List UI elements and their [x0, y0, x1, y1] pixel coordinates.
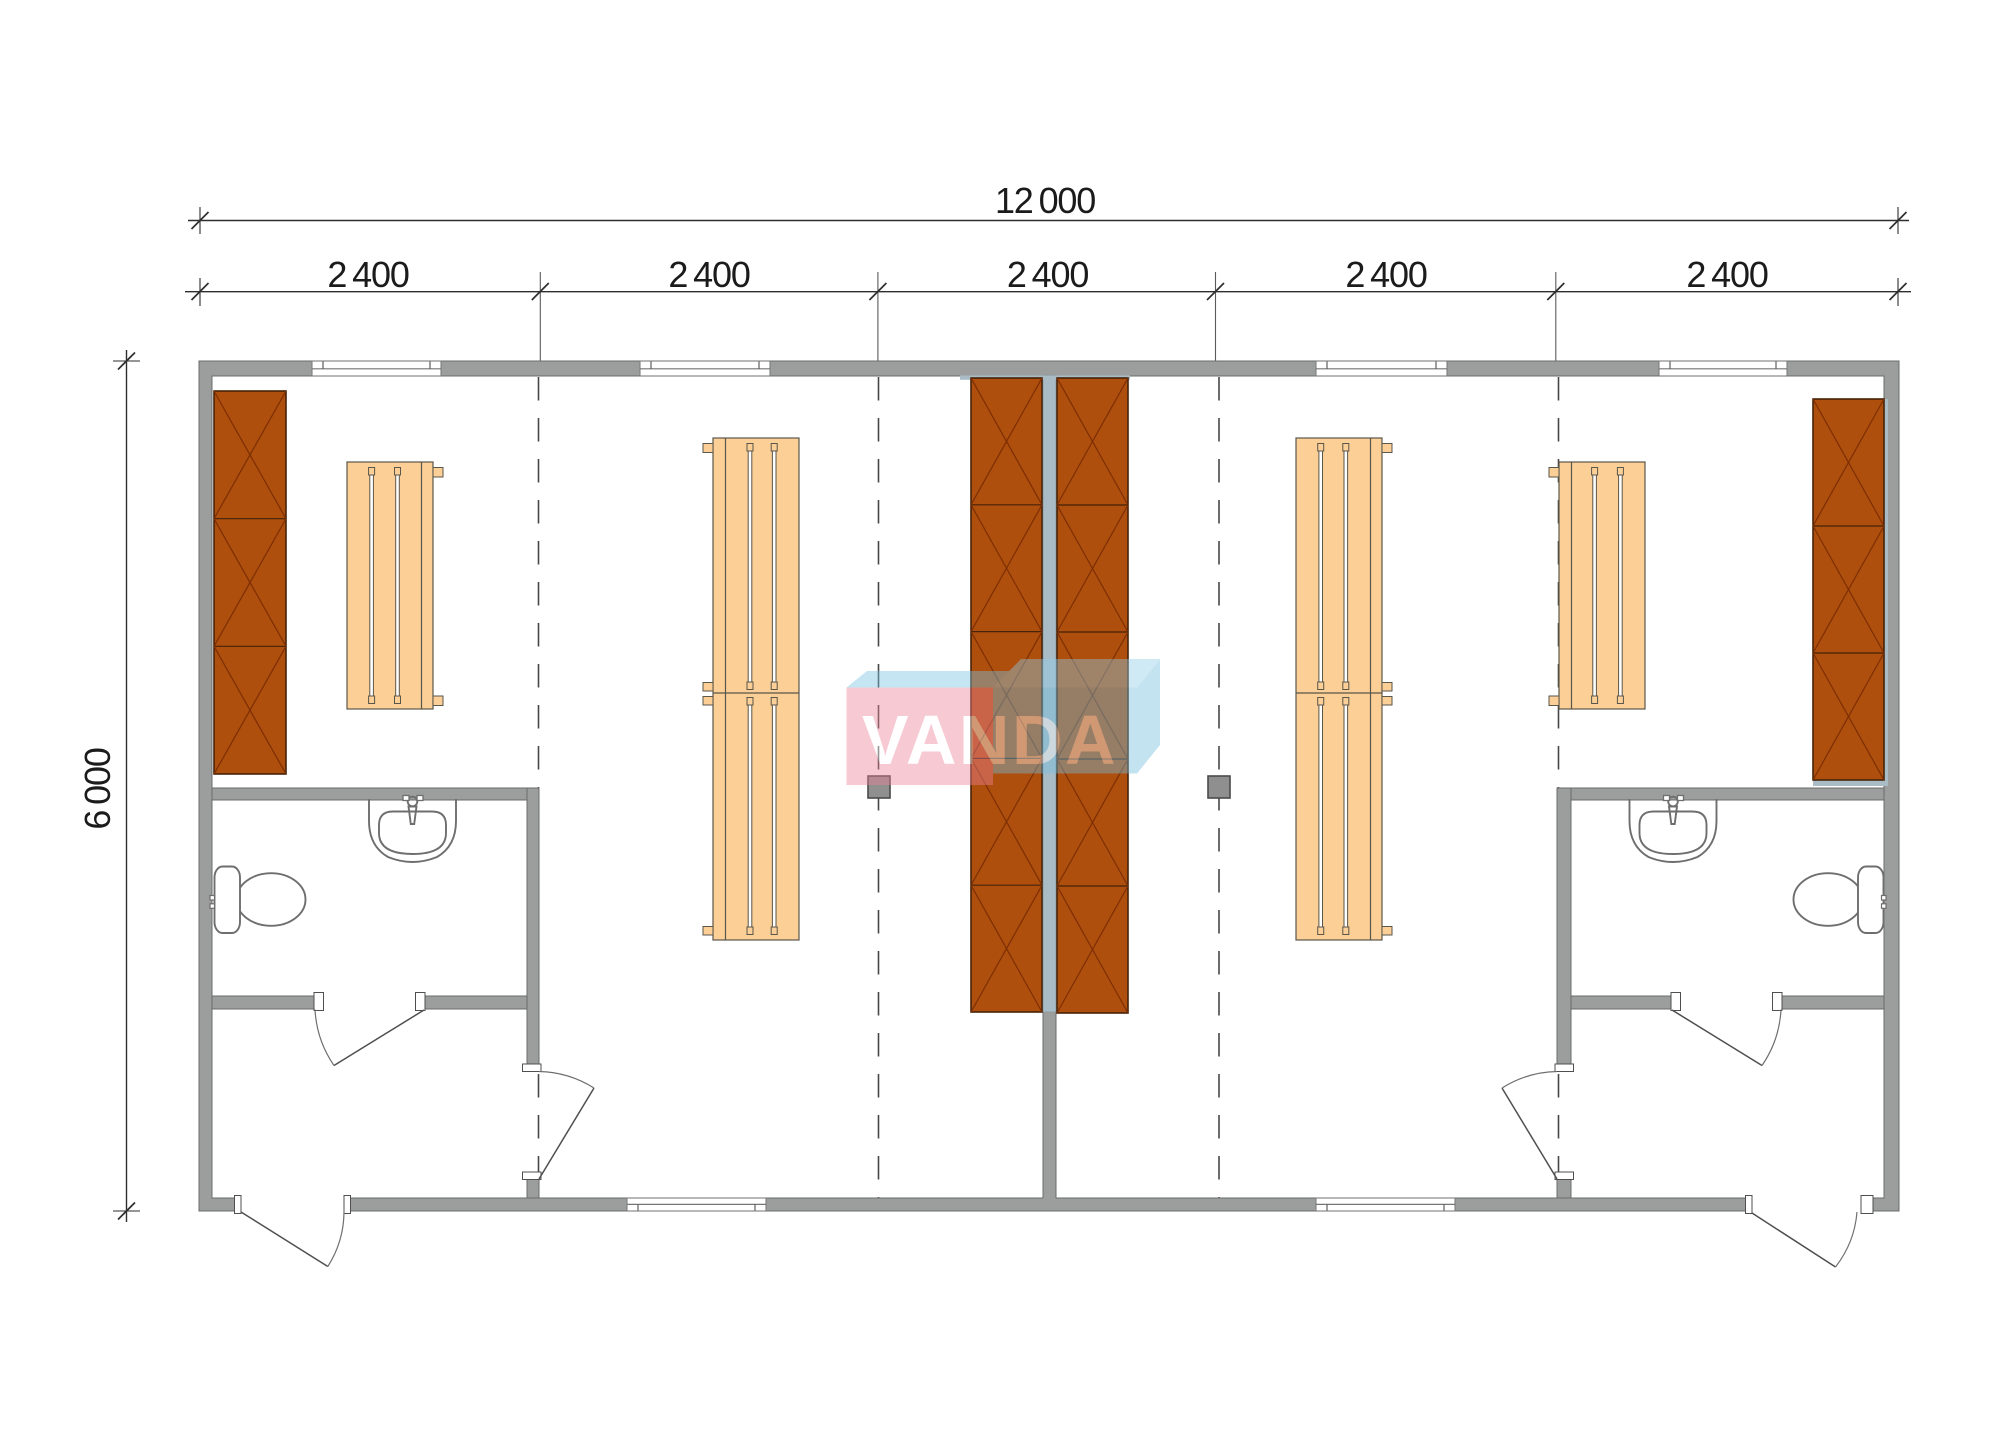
svg-text:12 000: 12 000	[995, 180, 1095, 221]
svg-text:2 400: 2 400	[1686, 254, 1767, 295]
svg-text:6 000: 6 000	[77, 748, 118, 829]
svg-text:VANDA: VANDA	[862, 701, 1118, 779]
svg-text:2 400: 2 400	[1007, 254, 1088, 295]
svg-text:2 400: 2 400	[668, 254, 749, 295]
svg-text:2 400: 2 400	[1345, 254, 1426, 295]
svg-text:2 400: 2 400	[327, 254, 408, 295]
